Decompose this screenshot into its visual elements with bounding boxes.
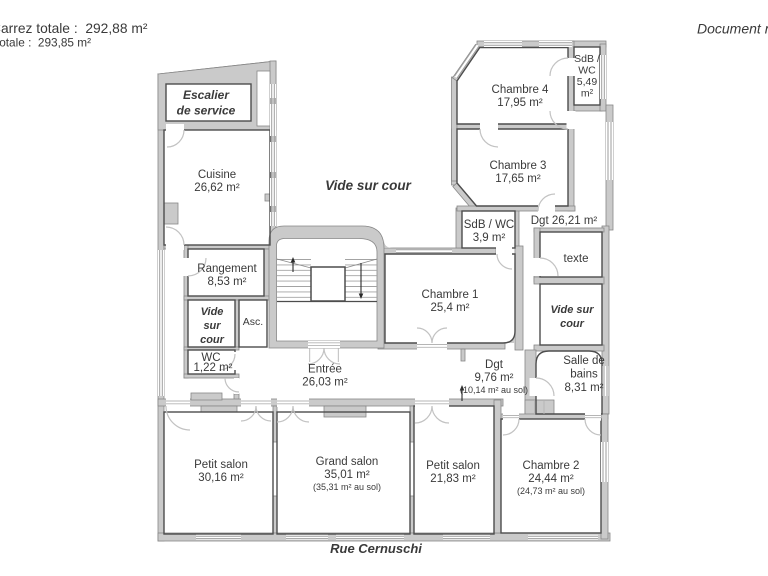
svg-text:17,65 m²: 17,65 m² bbox=[495, 173, 541, 185]
svg-text:26,62 m²: 26,62 m² bbox=[194, 182, 240, 194]
svg-text:Chambre 1: Chambre 1 bbox=[422, 289, 479, 301]
svg-text:Vide: Vide bbox=[201, 306, 224, 318]
svg-text:Rangement: Rangement bbox=[197, 263, 257, 275]
svg-text:1,22 m²: 1,22 m² bbox=[194, 362, 233, 374]
svg-text:Surface totale : 293,85 m²: Surface totale : 293,85 m² bbox=[0, 36, 91, 50]
svg-text:bains: bains bbox=[570, 369, 598, 381]
svg-text:8,31 m²: 8,31 m² bbox=[565, 382, 604, 394]
svg-text:Petit salon: Petit salon bbox=[194, 459, 248, 471]
svg-text:25,4 m²: 25,4 m² bbox=[431, 302, 470, 314]
svg-text:Escalier: Escalier bbox=[183, 88, 230, 102]
svg-text:Salle de: Salle de bbox=[563, 355, 605, 367]
svg-text:WC: WC bbox=[578, 65, 596, 77]
svg-text:(10,14 m² au sol): (10,14 m² au sol) bbox=[460, 385, 528, 395]
svg-text:8,53 m²: 8,53 m² bbox=[208, 276, 247, 288]
svg-text:Dgt: Dgt bbox=[485, 359, 504, 371]
svg-text:Rue Cernuschi: Rue Cernuschi bbox=[330, 541, 422, 556]
svg-text:5,49: 5,49 bbox=[577, 76, 598, 88]
svg-text:Vide sur: Vide sur bbox=[551, 304, 595, 316]
svg-text:26,03 m²: 26,03 m² bbox=[302, 377, 348, 389]
svg-text:3,9 m²: 3,9 m² bbox=[473, 232, 506, 244]
svg-text:SdB /: SdB / bbox=[574, 53, 600, 65]
svg-text:Chambre 3: Chambre 3 bbox=[490, 160, 547, 172]
svg-text:(35,31 m² au sol): (35,31 m² au sol) bbox=[313, 482, 381, 492]
svg-text:Grand salon: Grand salon bbox=[316, 456, 379, 468]
svg-text:24,44 m²: 24,44 m² bbox=[528, 473, 574, 485]
svg-text:35,01 m²: 35,01 m² bbox=[324, 469, 370, 481]
svg-text:Petit salon: Petit salon bbox=[426, 460, 480, 472]
svg-text:SdB / WC: SdB / WC bbox=[464, 219, 514, 231]
svg-text:cour: cour bbox=[560, 318, 585, 330]
svg-text:Entrée: Entrée bbox=[308, 364, 342, 376]
svg-text:Chambre 4: Chambre 4 bbox=[492, 84, 549, 96]
svg-text:Document n°: Document n° bbox=[697, 21, 768, 37]
svg-text:Cuisine: Cuisine bbox=[198, 169, 236, 181]
svg-text:Asc.: Asc. bbox=[243, 316, 263, 328]
svg-text:9,76 m²: 9,76 m² bbox=[475, 372, 514, 384]
svg-text:(24,73 m² au sol): (24,73 m² au sol) bbox=[517, 486, 585, 496]
svg-text:texte: texte bbox=[564, 253, 589, 265]
svg-text:Carrez totale : 292,88 m²: Carrez totale : 292,88 m² bbox=[0, 21, 148, 36]
svg-text:30,16 m²: 30,16 m² bbox=[198, 472, 244, 484]
svg-text:m²: m² bbox=[581, 88, 594, 100]
svg-text:Vide sur cour: Vide sur cour bbox=[325, 178, 412, 193]
svg-text:17,95 m²: 17,95 m² bbox=[497, 97, 543, 109]
svg-text:cour: cour bbox=[200, 334, 225, 346]
svg-text:de service: de service bbox=[177, 104, 236, 118]
svg-text:sur: sur bbox=[203, 320, 221, 332]
svg-text:21,83 m²: 21,83 m² bbox=[430, 473, 476, 485]
svg-text:Chambre 2: Chambre 2 bbox=[523, 460, 580, 472]
svg-text:Dgt 26,21 m²: Dgt 26,21 m² bbox=[531, 215, 598, 227]
